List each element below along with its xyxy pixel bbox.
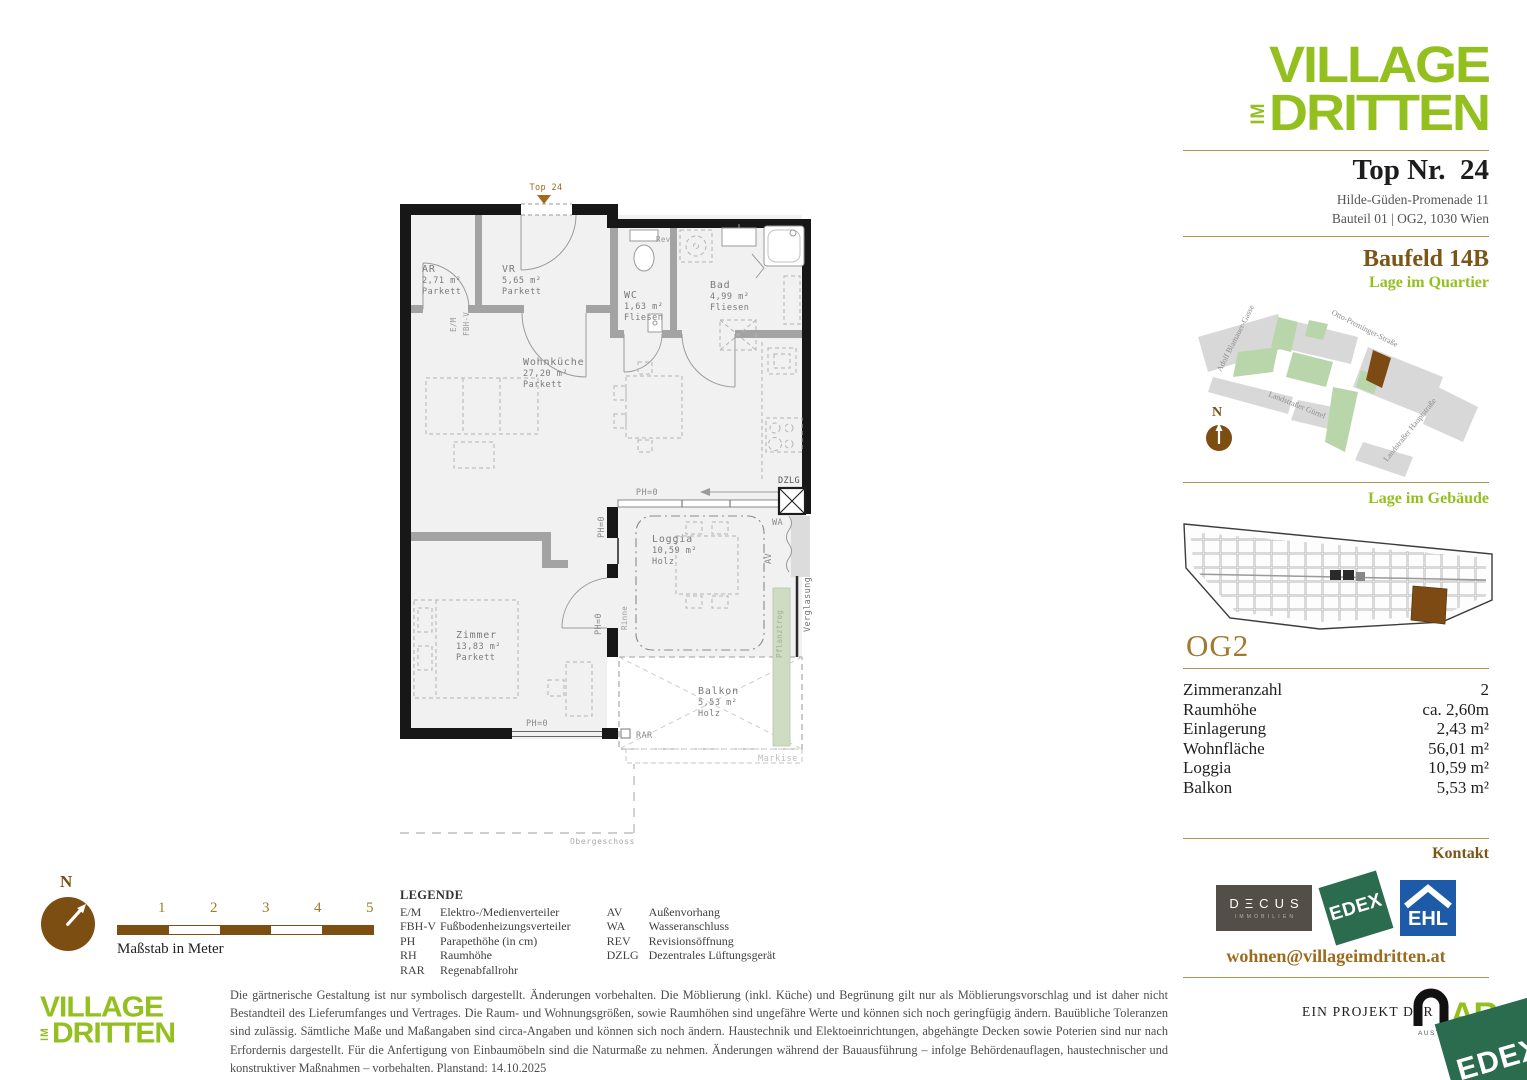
divider	[1183, 482, 1489, 483]
fact-value: ca. 2,60m	[1422, 700, 1489, 720]
quartier-subheading: Lage im Quartier	[1183, 274, 1489, 292]
entrance-arrow-icon	[537, 195, 551, 204]
em-label: E/M	[449, 317, 458, 332]
unit-title: Top Nr. 24	[1183, 154, 1489, 187]
baufeld-heading: Baufeld 14B	[1183, 246, 1489, 273]
are-arch-icon	[1418, 993, 1444, 1026]
gebaeude-heading: Lage im Gebäude	[1183, 490, 1489, 508]
plan-sheet: Top 24	[0, 0, 1527, 1080]
scale-number: 5	[366, 900, 374, 917]
fact-value: 2	[1481, 680, 1490, 700]
divider	[1183, 236, 1489, 237]
scale-number: 3	[262, 900, 270, 917]
legend-col2: AVAußenvorhang WAWasseranschluss REVRevi…	[607, 905, 776, 978]
entrance-label: Top 24	[529, 183, 562, 193]
divider	[1183, 668, 1489, 669]
rar-symbol	[621, 729, 630, 738]
markise-label: Markise	[758, 754, 798, 764]
building-plan	[1170, 512, 1500, 637]
ph0-loggia-label: PH=0	[636, 488, 658, 498]
fact-value: 10,59 m²	[1428, 758, 1489, 778]
footer-brand-logo: VILLAGE IM DRITTEN	[40, 995, 175, 1048]
divider	[1183, 977, 1489, 978]
disclaimer-text: Die gärtnerische Gestaltung ist nur symb…	[230, 986, 1168, 1077]
brand-logo: VILLAGE IM DRITTEN	[1183, 42, 1489, 137]
fact-row-loggia: Loggia10,59 m²	[1183, 758, 1489, 778]
fact-value: 56,01 m²	[1428, 739, 1489, 759]
fact-row-balkon: Balkon5,53 m²	[1183, 778, 1489, 798]
facts-table: Zimmeranzahl2 Raumhöheca. 2,60m Einlager…	[1183, 680, 1489, 797]
fact-label: Balkon	[1183, 778, 1232, 798]
decus-logo: DΞCUS IMMOBILIEN	[1216, 885, 1312, 931]
brand-word-dritten: DRITTEN	[1269, 91, 1489, 136]
fact-label: Loggia	[1183, 758, 1231, 778]
decus-wordmark: DΞCUS	[1229, 896, 1304, 911]
brand-word-im: IM	[1249, 102, 1268, 124]
fact-row-raumhoehe: Raumhöheca. 2,60m	[1183, 700, 1489, 720]
partner-logos: DΞCUS IMMOBILIEN EDEX EHL	[1183, 878, 1489, 938]
decus-subline: IMMOBILIEN	[1235, 914, 1296, 920]
scale-number: 4	[314, 900, 322, 917]
fbhv-label: FBH-V	[462, 312, 471, 336]
address-line2: Bauteil 01 | OG2, 1030 Wien	[1183, 209, 1489, 228]
fact-label: Wohnfläche	[1183, 739, 1265, 759]
contact-email[interactable]: wohnen@villageimdritten.at	[1183, 946, 1489, 967]
dzlg-label: DZLG	[778, 476, 800, 486]
rev-label: Rev	[656, 235, 671, 244]
obergeschoss-line	[400, 764, 634, 833]
brand-word-im: IM	[40, 1028, 51, 1042]
scale-number: 1	[158, 900, 166, 917]
scale-caption: Maßstab in Meter	[117, 941, 224, 958]
building-highlight-unit	[1411, 586, 1447, 624]
unit-address: Hilde-Güden-Promenade 11 Bauteil 01 | OG…	[1183, 190, 1489, 228]
legend-title: LEGENDE	[400, 888, 776, 903]
legend: LEGENDE E/MElektro-/Medienverteiler FBH-…	[400, 888, 776, 977]
floor-level-label: OG2	[1186, 628, 1249, 664]
av-label: AV	[764, 553, 774, 564]
fact-value: 2,43 m²	[1437, 719, 1489, 739]
address-line1: Hilde-Güden-Promenade 11	[1183, 190, 1489, 209]
obergeschoss-label: Obergeschoss	[570, 837, 635, 846]
edex-logo: EDEX	[1319, 871, 1394, 946]
ph0-vert1-label: PH=0	[597, 516, 607, 538]
scale-number: 2	[210, 900, 218, 917]
fact-label: Einlagerung	[1183, 719, 1266, 739]
divider	[1183, 838, 1489, 839]
ph0-zimmer-label: PH=0	[526, 719, 548, 729]
fact-label: Zimmeranzahl	[1183, 680, 1282, 700]
fact-row-wohnflaeche: Wohnfläche56,01 m²	[1183, 739, 1489, 759]
kontakt-heading: Kontakt	[1183, 845, 1489, 863]
room-label-balkon: Balkon 5,53 m² Holz	[698, 686, 746, 719]
map-north-label: N	[1212, 405, 1222, 420]
pflanztrog-label: Pflanztrog	[775, 610, 784, 658]
legend-col1: E/MElektro-/Medienverteiler FBH-VFußbode…	[400, 905, 571, 978]
fact-label: Raumhöhe	[1183, 700, 1257, 720]
wa-label: WA	[772, 518, 783, 528]
fact-row-einlagerung: Einlagerung2,43 m²	[1183, 719, 1489, 739]
rar-label: RAR	[636, 731, 653, 741]
compass-icon	[40, 896, 96, 952]
divider	[1183, 150, 1489, 151]
ehl-logo: EHL	[1400, 880, 1456, 936]
ph0-vert2-label: PH=0	[594, 613, 604, 635]
verglasung-label: Verglasung	[803, 577, 813, 632]
fact-value: 5,53 m²	[1437, 778, 1489, 798]
edex-wordmark: EDEX	[1453, 1032, 1527, 1080]
ehl-wordmark: EHL	[1408, 908, 1448, 930]
scale-bar	[117, 925, 374, 935]
brand-word-dritten: DRITTEN	[52, 1022, 175, 1047]
brand-word-village: VILLAGE	[1269, 43, 1489, 88]
fact-row-zimmeranzahl: Zimmeranzahl2	[1183, 680, 1489, 700]
edex-wordmark: EDEX	[1327, 890, 1385, 927]
north-label: N	[60, 872, 72, 892]
rinne-label: Rinne	[620, 606, 629, 630]
floorplan: Top 24	[390, 180, 840, 870]
quartier-map: Adolf Blamauer-Gasse Otto-Preminger-Stra…	[1183, 292, 1489, 480]
